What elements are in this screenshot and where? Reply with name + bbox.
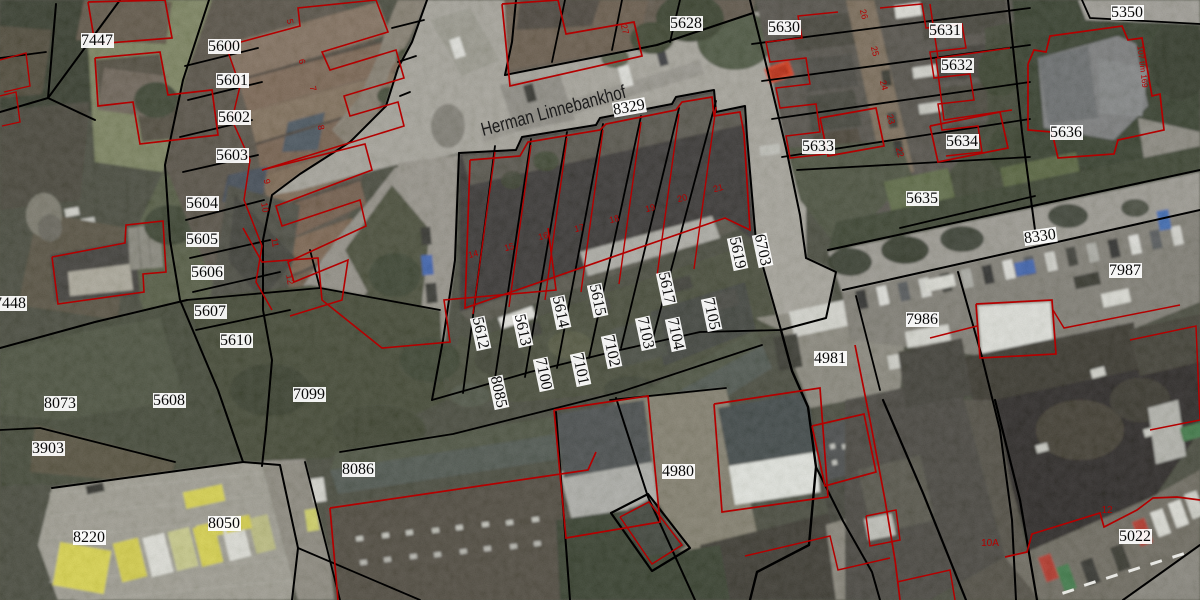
- svg-text:12: 12: [284, 274, 296, 286]
- svg-text:3903: 3903: [32, 440, 64, 457]
- svg-text:11: 11: [269, 237, 280, 248]
- svg-text:5603: 5603: [216, 147, 248, 164]
- svg-text:7448: 7448: [0, 295, 26, 312]
- svg-text:5631: 5631: [929, 22, 961, 39]
- svg-text:8220: 8220: [73, 529, 105, 546]
- svg-text:5350: 5350: [1111, 4, 1143, 21]
- svg-text:5022: 5022: [1119, 528, 1151, 545]
- svg-text:7447: 7447: [81, 32, 113, 49]
- svg-text:5600: 5600: [208, 38, 240, 55]
- svg-text:12: 12: [1101, 505, 1113, 516]
- svg-text:5608: 5608: [153, 392, 185, 409]
- svg-text:7986: 7986: [906, 311, 938, 328]
- svg-text:5635: 5635: [906, 190, 938, 207]
- svg-text:5633: 5633: [802, 138, 834, 155]
- svg-text:4980: 4980: [662, 463, 694, 480]
- svg-text:5602: 5602: [218, 109, 250, 126]
- svg-text:5634: 5634: [946, 133, 978, 150]
- svg-text:8073: 8073: [44, 395, 76, 412]
- svg-text:5604: 5604: [186, 195, 218, 212]
- svg-text:5610: 5610: [220, 332, 252, 349]
- svg-text:7987: 7987: [1109, 262, 1141, 279]
- svg-text:5636: 5636: [1050, 124, 1082, 141]
- svg-text:10A: 10A: [981, 538, 999, 549]
- svg-text:10: 10: [259, 202, 271, 214]
- svg-text:7099: 7099: [293, 386, 325, 403]
- svg-text:5607: 5607: [194, 303, 226, 320]
- svg-text:5632: 5632: [941, 57, 973, 74]
- svg-text:5628: 5628: [670, 15, 702, 32]
- svg-text:5606: 5606: [191, 264, 223, 281]
- svg-text:5605: 5605: [186, 231, 218, 248]
- svg-text:8050: 8050: [208, 515, 240, 532]
- svg-text:4981: 4981: [814, 350, 846, 367]
- svg-text:8086: 8086: [342, 461, 374, 478]
- svg-text:5601: 5601: [216, 72, 248, 89]
- svg-text:5630: 5630: [768, 19, 800, 36]
